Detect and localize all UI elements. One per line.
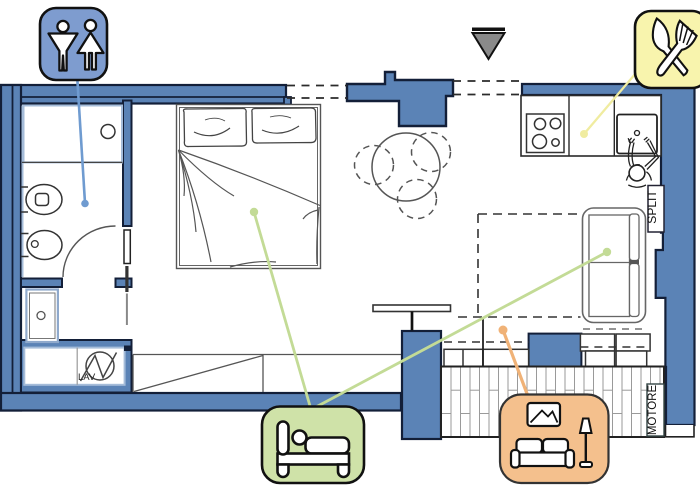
- svg-text:LAV: LAV: [78, 372, 96, 383]
- svg-text:SPLIT: SPLIT: [645, 190, 659, 224]
- svg-text:MOTORE: MOTORE: [647, 385, 659, 436]
